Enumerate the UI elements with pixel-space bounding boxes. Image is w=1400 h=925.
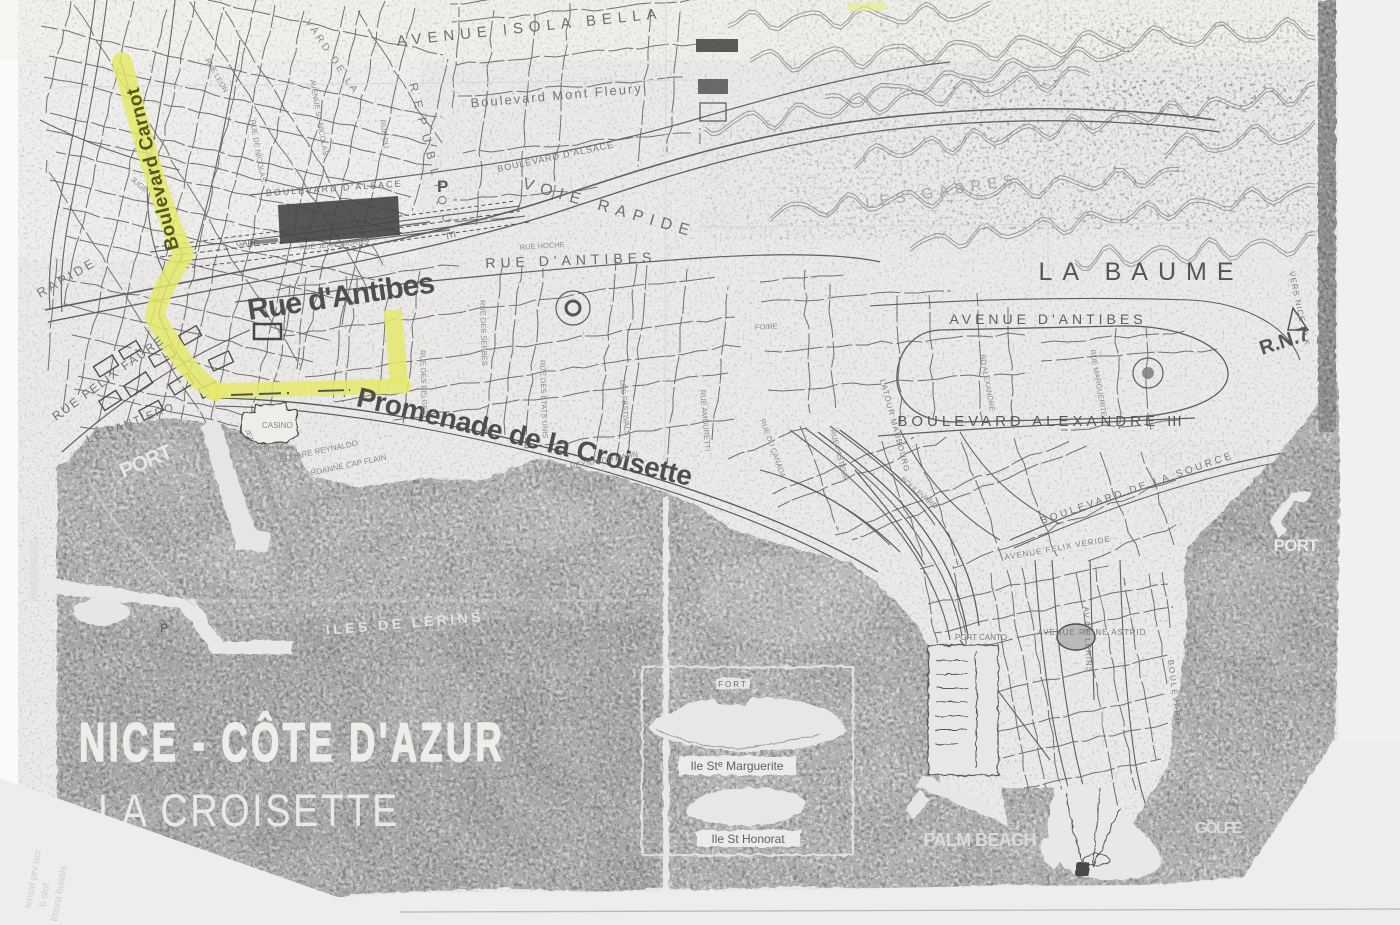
svg-text:FORT: FORT — [718, 680, 748, 689]
svg-text:GOLFE: GOLFE — [1195, 820, 1243, 837]
svg-text:GARE: GARE — [236, 239, 259, 248]
svg-text:NICE - CÔTE D'AZUR: NICE - CÔTE D'AZUR — [79, 711, 505, 773]
svg-text:FOIRE: FOIRE — [755, 321, 778, 332]
svg-text:PALM BEACH: PALM BEACH — [924, 830, 1039, 850]
svg-text:LA BAUME: LA BAUME — [1038, 258, 1243, 286]
svg-text:P: P — [160, 621, 168, 635]
svg-text:Ile Ste Marguerite: Ile Ste Marguerite — [690, 759, 783, 773]
svg-text:BOULEVARD ALEXANDRE III: BOULEVARD ALEXANDRE III — [897, 413, 1182, 430]
svg-text:AVENUE D'ANTIBES: AVENUE D'ANTIBES — [949, 311, 1146, 327]
svg-text:Ile St Honorat: Ile St Honorat — [711, 832, 785, 846]
svg-text:PORT CANTO: PORT CANTO — [955, 633, 1007, 642]
svg-text:PORT: PORT — [1274, 536, 1321, 555]
svg-text:LA CROISETTE: LA CROISETTE — [98, 785, 400, 836]
svg-text:AVENUE REINE ASTRID: AVENUE REINE ASTRID — [1037, 628, 1146, 637]
svg-text:CASINO: CASINO — [262, 421, 293, 430]
svg-text:P: P — [437, 177, 448, 196]
